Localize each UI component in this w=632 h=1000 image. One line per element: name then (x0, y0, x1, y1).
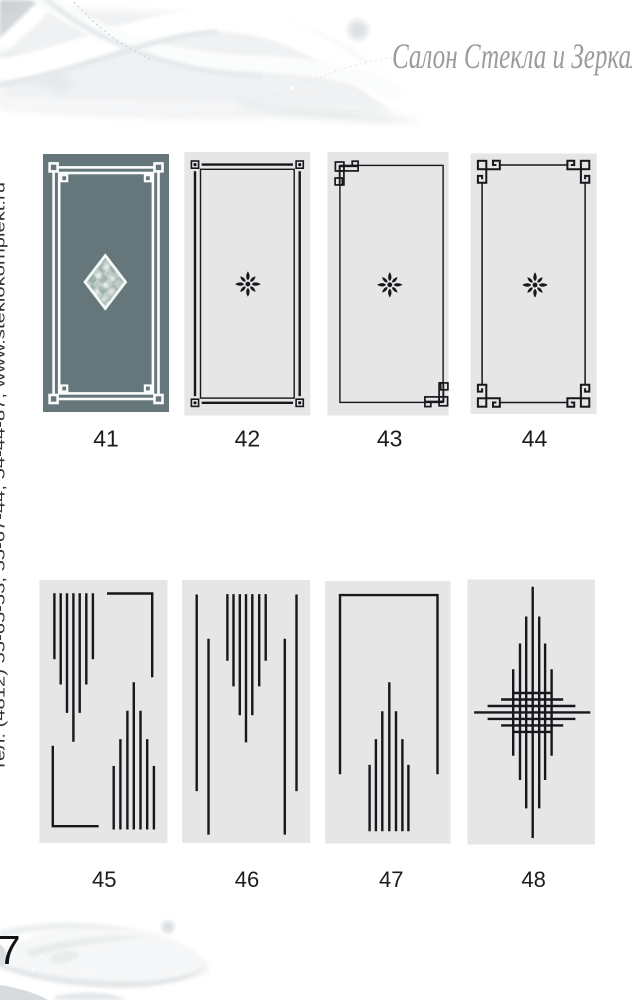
svg-text:17: 17 (0, 927, 21, 973)
svg-text:48: 48 (521, 867, 545, 892)
svg-text:43: 43 (377, 426, 403, 452)
svg-text:47: 47 (379, 867, 403, 892)
svg-text:тел. (4812) 55-65-53, 55-67-44: тел. (4812) 55-65-53, 55-67-44, 54-44-87… (0, 182, 9, 770)
svg-text:45: 45 (92, 867, 116, 892)
svg-text:42: 42 (235, 426, 261, 452)
svg-text:Салон Стекла и Зеркал: Салон Стекла и Зеркал (392, 36, 632, 76)
svg-text:41: 41 (93, 426, 119, 452)
svg-text:44: 44 (522, 426, 548, 452)
svg-text:46: 46 (235, 867, 259, 892)
